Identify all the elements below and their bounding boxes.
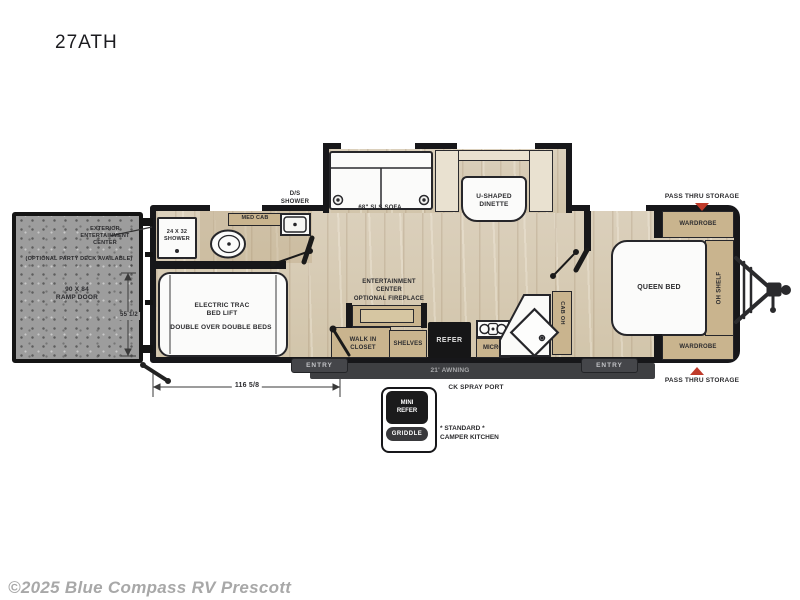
wardrobe-bottom-label: WARDROBE xyxy=(679,344,716,352)
entry-door-right: ENTRY xyxy=(581,358,638,373)
sink-icon xyxy=(284,217,306,232)
arrow-down-icon xyxy=(695,203,709,211)
rear-stabilizer xyxy=(141,363,171,384)
ck-spray-port-label: CK SPRAY PORT xyxy=(448,384,503,392)
med-cab-label: MED CAB xyxy=(241,215,268,222)
floorplan-page: 27ATH ©2025 Blue Compass RV Prescott REF… xyxy=(0,0,800,600)
arrow-up-icon xyxy=(690,367,704,375)
toilet-icon xyxy=(211,231,245,258)
oh-shelf-label: OH SHELF xyxy=(705,240,734,336)
pass-thru-bottom-label: PASS THRU STORAGE xyxy=(665,377,739,385)
ent-center-label: ENTERTAINMENT CENTER xyxy=(362,279,416,294)
cooktop-icon xyxy=(480,324,506,335)
entry-right-label: ENTRY xyxy=(596,362,623,369)
hitch xyxy=(736,258,791,322)
camper-kitchen-note: * STANDARD * CAMPER KITCHEN xyxy=(440,424,499,443)
party-deck-label: (OPTIONAL PARTY DECK AVAILABLE) xyxy=(26,256,133,263)
sofa-label: 68" SLS SOFA xyxy=(358,205,401,213)
entry-door-left: ENTRY xyxy=(291,358,348,373)
shower-24x32-label: 24 X 32 SHOWER xyxy=(164,229,190,243)
bath-door-swing xyxy=(271,238,313,267)
closet-door-swing xyxy=(330,326,349,355)
bed-lift-label: ELECTRIC TRAC BED LIFT xyxy=(195,302,250,318)
ds-shower-label: D/S SHOWER xyxy=(281,191,309,206)
length-dim-label: 116 5/8 xyxy=(232,382,262,391)
pass-thru-top-label: PASS THRU STORAGE xyxy=(665,193,739,201)
mini-refer-label: MINI REFER xyxy=(397,400,417,416)
shelves-label: SHELVES xyxy=(394,341,423,349)
ramp-door-label: 90 X 84 RAMP DOOR xyxy=(56,286,98,302)
wardrobe-top-label: WARDROBE xyxy=(679,221,716,229)
bedroom-door-swing xyxy=(551,250,588,279)
queen-bed-label: QUEEN BED xyxy=(637,284,680,293)
corner-sink-icon xyxy=(500,295,558,356)
bed-type-label: DOUBLE OVER DOUBLE BEDS xyxy=(170,324,271,332)
ext-ent-center-label: EXTERIOR ENTERTAINMENT CENTER xyxy=(80,226,129,247)
griddle-label: GRIDDLE xyxy=(392,431,423,437)
dinette-label: U-SHAPED DINETTE xyxy=(476,193,512,209)
shower-drain xyxy=(175,249,179,253)
walk-in-closet-label: WALK IN CLOSET xyxy=(350,337,377,352)
sofa-cushion-lines xyxy=(331,168,431,209)
ramp-dim-label: 55 1/2 xyxy=(118,312,140,320)
fireplace-label: OPTIONAL FIREPLACE xyxy=(354,296,424,304)
cab-oh-label: CAB OH xyxy=(552,291,572,335)
entry-left-label: ENTRY xyxy=(306,362,333,369)
awning-label: 21' AWNING xyxy=(430,367,469,375)
griddle: GRIDDLE xyxy=(386,427,428,441)
mini-refer: MINI REFER xyxy=(386,391,428,424)
ramp-hinges xyxy=(141,218,153,353)
